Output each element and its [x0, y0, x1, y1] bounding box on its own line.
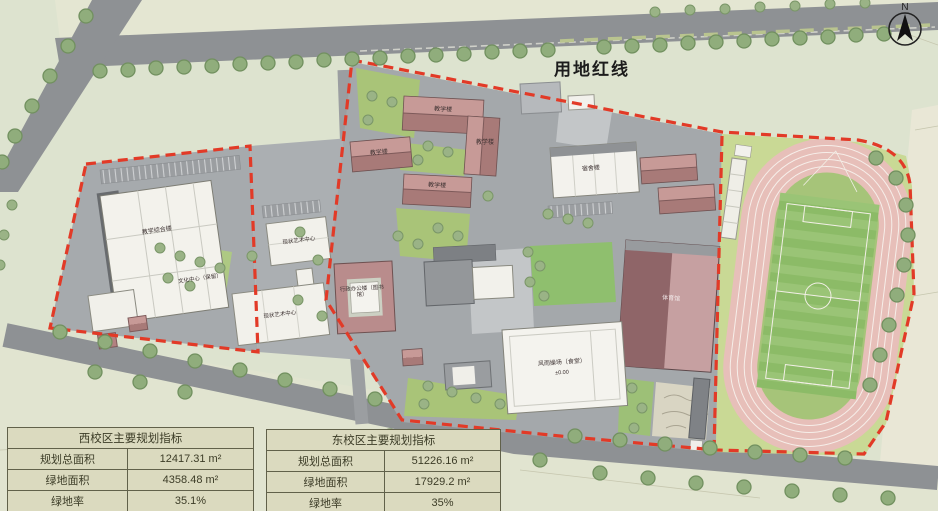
- east-row2-value: 17929.2 m²: [385, 472, 501, 493]
- east-row1-label: 规划总面积: [267, 451, 385, 472]
- art-center-south-building: [232, 283, 330, 346]
- admin-library-building: [334, 261, 396, 334]
- gray-small-building: [444, 361, 492, 390]
- small-red-house: [128, 315, 148, 331]
- west-row2-value: 4358.48 m²: [128, 470, 254, 491]
- east-row3-value: 35%: [385, 493, 501, 511]
- red-building-ne-2: [658, 184, 716, 214]
- east-row3-label: 绿地率: [267, 493, 385, 511]
- teaching-building-3: [464, 116, 500, 176]
- campus-master-plan: N 用地红线 教学综合楼 文化中心（保留） 现状艺术中心 现状艺术中心 教学楼 …: [0, 0, 938, 511]
- teaching-building-2: [350, 137, 412, 172]
- red-building-ne-1: [640, 154, 698, 184]
- west-campus-table: 西校区主要规划指标 规划总面积 12417.31 m² 绿地面积 4358.48…: [7, 427, 254, 511]
- west-row1-value: 12417.31 m²: [128, 449, 254, 470]
- pavilion-building: [402, 349, 423, 366]
- west-row1-label: 规划总面积: [8, 449, 128, 470]
- west-row3-label: 绿地率: [8, 491, 128, 511]
- canteen-building: [502, 322, 628, 414]
- dormitory-building: [550, 142, 639, 198]
- west-row2-label: 绿地面积: [8, 470, 128, 491]
- east-row1-value: 51226.16 m²: [385, 451, 501, 472]
- red-line-label: 用地红线: [554, 55, 630, 80]
- east-row2-label: 绿地面积: [267, 472, 385, 493]
- gymnasium-building: [617, 240, 720, 372]
- east-campus-table: 东校区主要规划指标 规划总面积 51226.16 m² 绿地面积 17929.2…: [266, 429, 501, 511]
- west-row3-value: 35.1%: [128, 491, 254, 511]
- west-table-title: 西校区主要规划指标: [8, 428, 254, 449]
- north-label: N: [901, 2, 908, 13]
- teaching-building-4: [402, 174, 471, 208]
- east-table-title: 东校区主要规划指标: [267, 430, 501, 451]
